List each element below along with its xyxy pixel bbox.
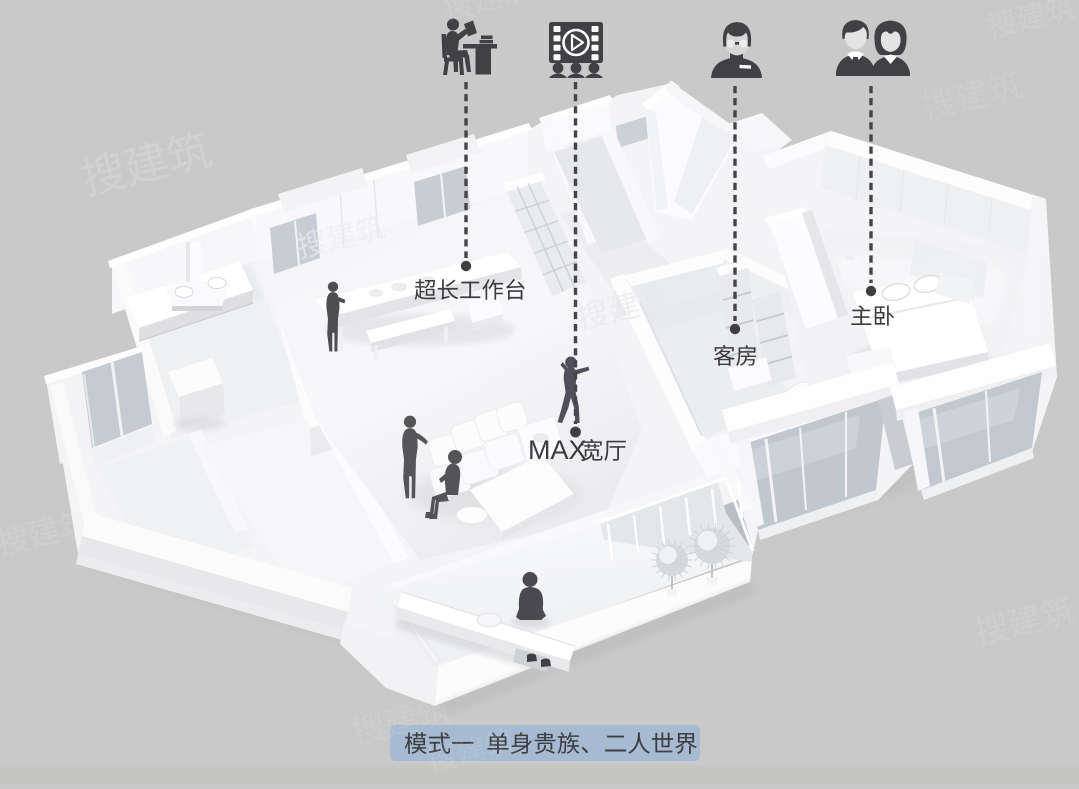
svg-text:MAX: MAX [528,435,587,465]
